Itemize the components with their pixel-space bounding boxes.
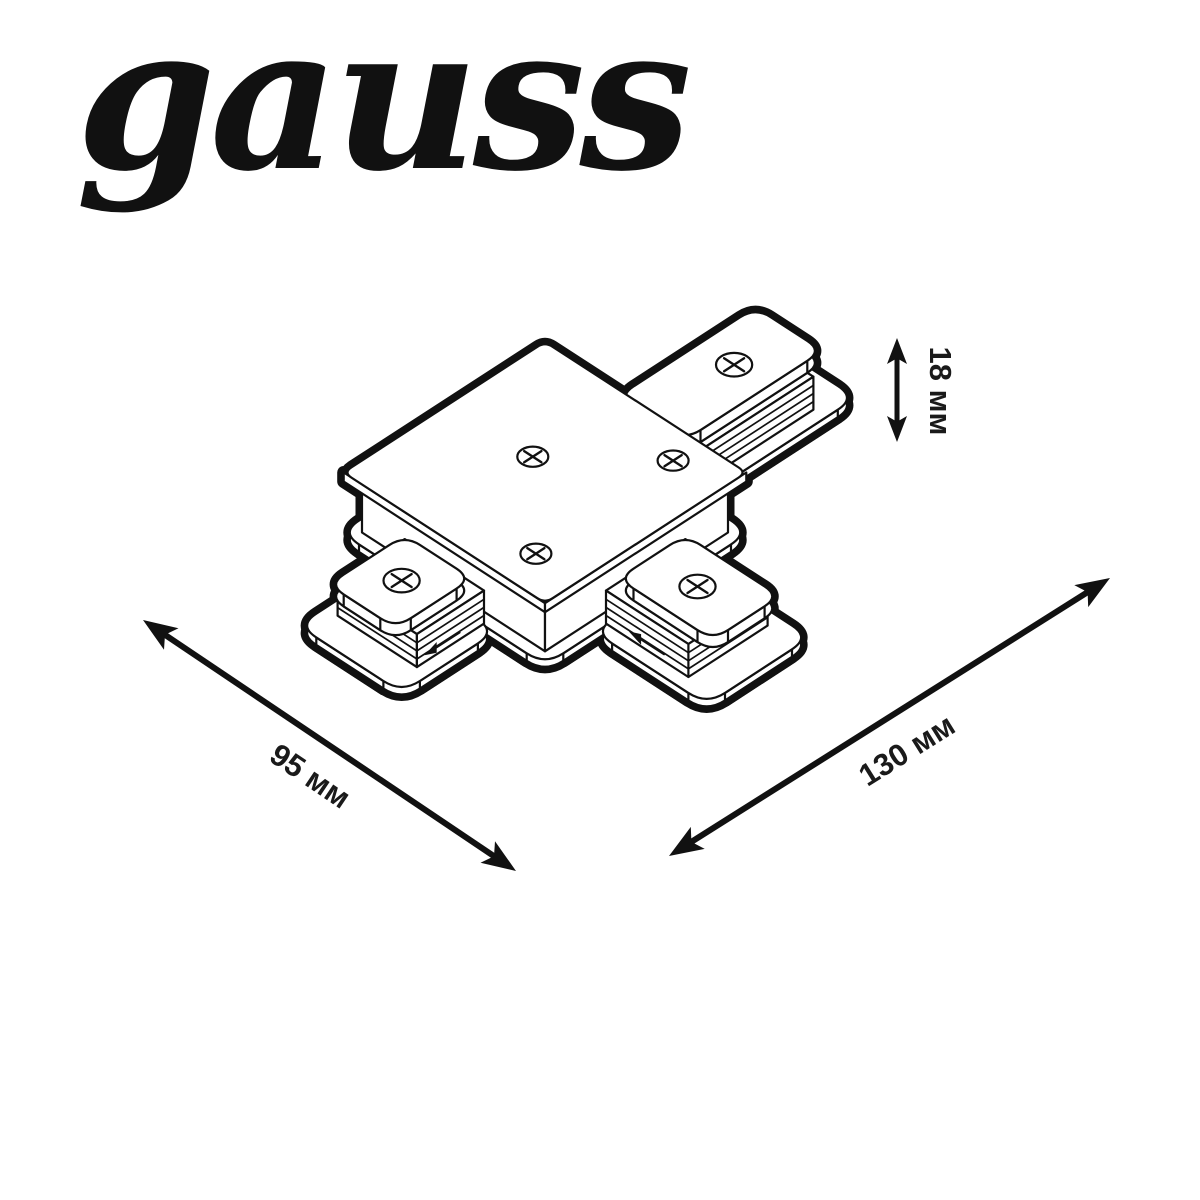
connector-isometric-drawing [307,312,847,706]
detail-pass [307,312,847,706]
dimension-length-label: 130 мм [852,707,961,793]
product-dimension-diagram: gauss 95 мм 130 мм 18 мм [0,0,1200,1200]
brand-logo: gauss [76,0,688,216]
dimension-width-label: 95 мм [264,737,357,816]
dimension-height-label: 18 мм [923,347,958,436]
dimension-height-arrow [887,338,907,442]
